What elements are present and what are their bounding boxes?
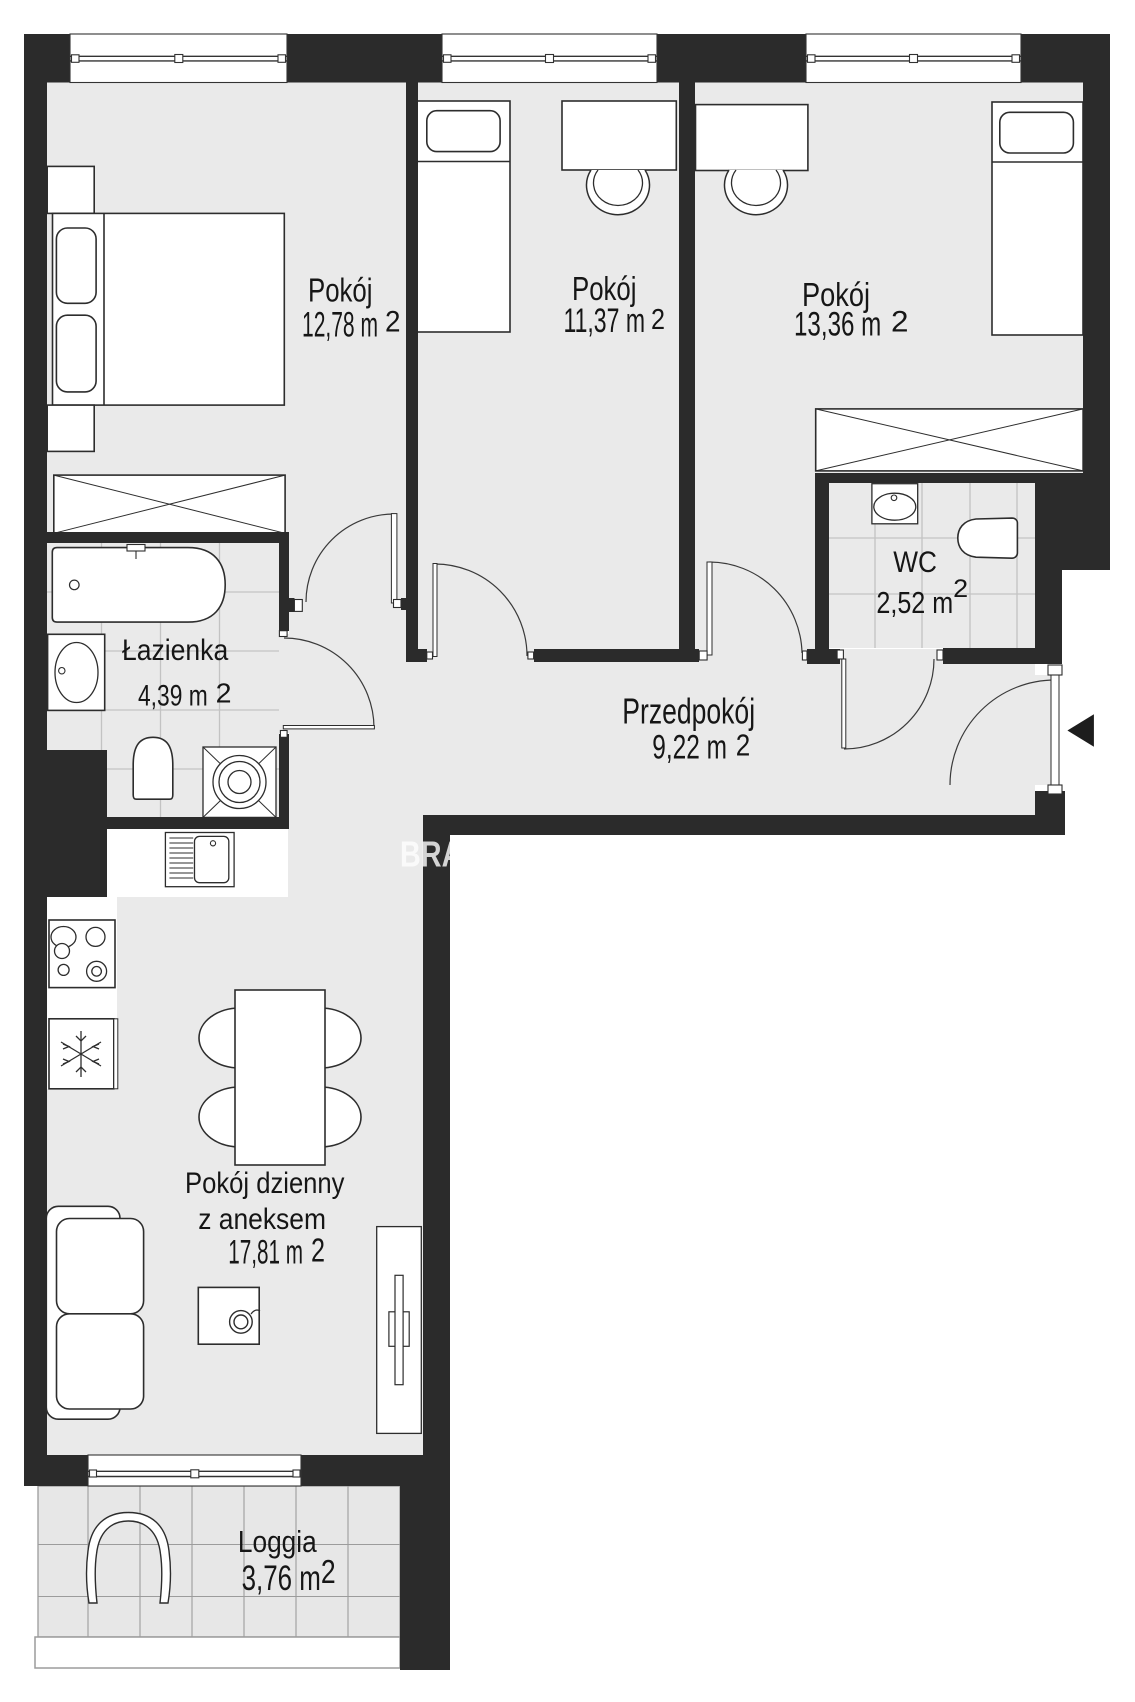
svg-text:4,39 m: 4,39 m	[138, 680, 208, 713]
svg-text:Pokój dzienny: Pokój dzienny	[185, 1167, 345, 1200]
svg-text:Przedpokój: Przedpokój	[622, 691, 755, 732]
svg-text:2: 2	[385, 306, 401, 339]
svg-text:17,81 m: 17,81 m	[228, 1233, 303, 1271]
svg-text:9,22 m: 9,22 m	[652, 729, 727, 767]
svg-text:2: 2	[736, 728, 751, 763]
svg-text:13,36 m: 13,36 m	[794, 305, 881, 343]
svg-text:2: 2	[321, 1553, 336, 1590]
svg-text:Pokój: Pokój	[308, 272, 373, 309]
svg-text:2: 2	[651, 304, 665, 336]
svg-text:2: 2	[311, 1232, 325, 1269]
svg-text:BRACIA: BRACIA	[400, 833, 512, 874]
svg-text:11,37 m: 11,37 m	[564, 302, 646, 340]
svg-text:Łazienka: Łazienka	[122, 634, 228, 667]
svg-text:2: 2	[891, 305, 909, 338]
svg-text:12,78 m: 12,78 m	[302, 306, 378, 345]
svg-text:2,52 m: 2,52 m	[876, 585, 953, 620]
svg-text:z aneksem: z aneksem	[198, 1203, 326, 1236]
svg-text:3,76 m: 3,76 m	[242, 1559, 321, 1598]
svg-text:2: 2	[216, 677, 232, 708]
svg-text:Loggia: Loggia	[238, 1524, 317, 1559]
svg-text:WC: WC	[893, 546, 937, 579]
svg-text:2: 2	[953, 575, 968, 603]
